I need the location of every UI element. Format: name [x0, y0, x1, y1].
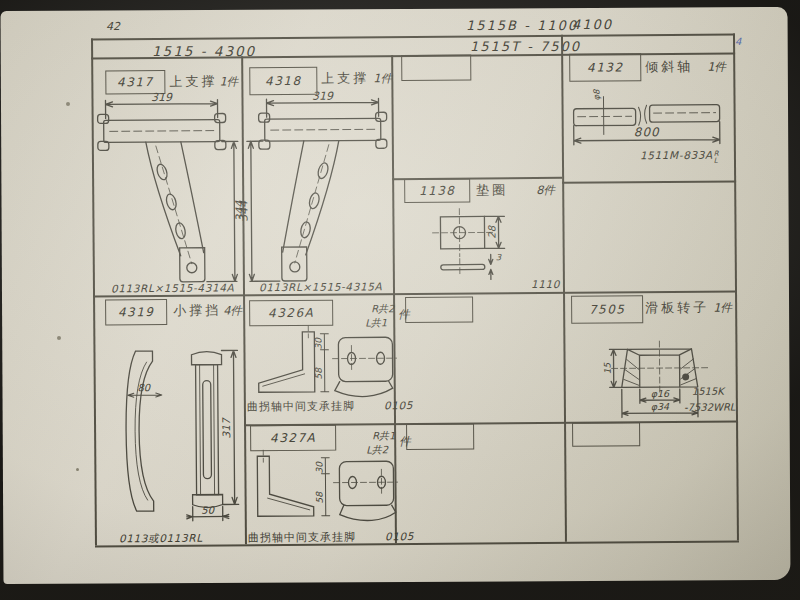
page-number: 42 — [106, 20, 120, 33]
corner-pen-mark: 4 — [735, 36, 741, 47]
qty-note-r: R共2 — [371, 302, 394, 316]
part-tab-1138: 1138 — [404, 179, 470, 204]
paper-speck — [76, 468, 79, 471]
qty-unit: 件 — [398, 307, 410, 322]
part-number: 4319 — [118, 305, 155, 319]
part-number: 4318 — [265, 74, 302, 88]
part-tab-4319: 4319 — [105, 299, 167, 325]
grid-hline — [562, 180, 736, 183]
caption-code: 0105 — [385, 530, 414, 542]
parts-table: 4317 4318 4132 1138 4319 4326A 7505 4327… — [91, 33, 739, 549]
part-name: 倾斜轴 — [645, 58, 693, 76]
drawing-4319-brace: 80 317 50 — [105, 342, 246, 528]
dim-height: 58 — [315, 491, 325, 504]
empty-part-tab — [405, 297, 473, 324]
paper-speck — [66, 102, 70, 106]
part-qty: 1件 — [707, 60, 726, 75]
dim-height: 317 — [220, 417, 232, 438]
part-qty: 4件 — [223, 303, 242, 318]
part-qty: 1件 — [373, 71, 392, 86]
paper-speck — [57, 336, 61, 340]
dim-width: 319 — [151, 91, 173, 104]
dim-width: 80 — [137, 382, 151, 393]
dim-top: 30 — [313, 337, 323, 350]
qty-note-r: R共1 — [372, 429, 395, 443]
drawing-4132-shaft: φ8 800 — [567, 84, 732, 170]
part-tab-4132: 4132 — [569, 53, 641, 82]
dim-length: 800 — [634, 125, 660, 139]
drawing-4317-bracket: 319 344 — [95, 89, 247, 285]
empty-part-tab — [401, 55, 471, 82]
part-number: 7505 — [589, 302, 626, 316]
dim-width: 319 — [312, 90, 334, 103]
part-number: 1138 — [419, 184, 456, 198]
dim-top: 30 — [314, 461, 324, 474]
caption: 曲拐轴中间支承挂脚 — [248, 529, 356, 545]
dim-diameter: φ8 — [591, 88, 601, 101]
dim-thickness: 3 — [496, 252, 502, 262]
part-tab-7505: 7505 — [571, 295, 643, 324]
part-name: 上支撑 — [169, 73, 217, 91]
dim-outer: φ34 — [651, 401, 670, 412]
part-name: 垫圈 — [476, 181, 508, 199]
drawing-4326a-foot: 30 58 — [246, 323, 397, 400]
qty-unit: 件 — [399, 434, 411, 449]
dim-height: 15 — [603, 361, 613, 374]
part-number: 4132 — [587, 60, 624, 74]
grid-vline — [561, 35, 567, 542]
caption: 曲拐轴中间支承挂脚 — [247, 398, 355, 414]
part-qty: 1件 — [713, 301, 732, 316]
part-qty: 1件 — [219, 74, 238, 89]
part-number: 4326A — [268, 306, 314, 320]
drawing-1138-washer: 28 3 — [432, 208, 563, 289]
part-tab-4326a: 4326A — [249, 300, 333, 327]
caption-code: 0105 — [384, 399, 413, 411]
part-qty: 8件 — [536, 183, 555, 198]
drawing-4318-bracket: 319 344 — [242, 88, 394, 284]
empty-part-tab — [406, 424, 474, 451]
part-name: 上支撑 — [321, 69, 369, 87]
drawing-7505-bush: 15 φ16 φ34 — [593, 336, 739, 432]
code-line1: 1515B - 1100 — [466, 18, 578, 33]
dim-height: 28 — [486, 224, 497, 238]
part-name: 滑板转子 — [645, 299, 709, 318]
caption: 0113或0113RL — [119, 532, 203, 547]
part-number: 4327A — [270, 431, 316, 445]
dim-bore: φ16 — [651, 388, 670, 399]
part-name: 小撑挡 — [173, 302, 221, 320]
dim-foot: 50 — [201, 505, 215, 516]
part-number: 4317 — [117, 75, 154, 89]
code-line1-right: 4100 — [572, 17, 613, 32]
dim-height: 58 — [314, 367, 324, 380]
dim-height: 344 — [237, 200, 250, 222]
drawing-4327a-foot: 30 58 — [247, 447, 398, 524]
